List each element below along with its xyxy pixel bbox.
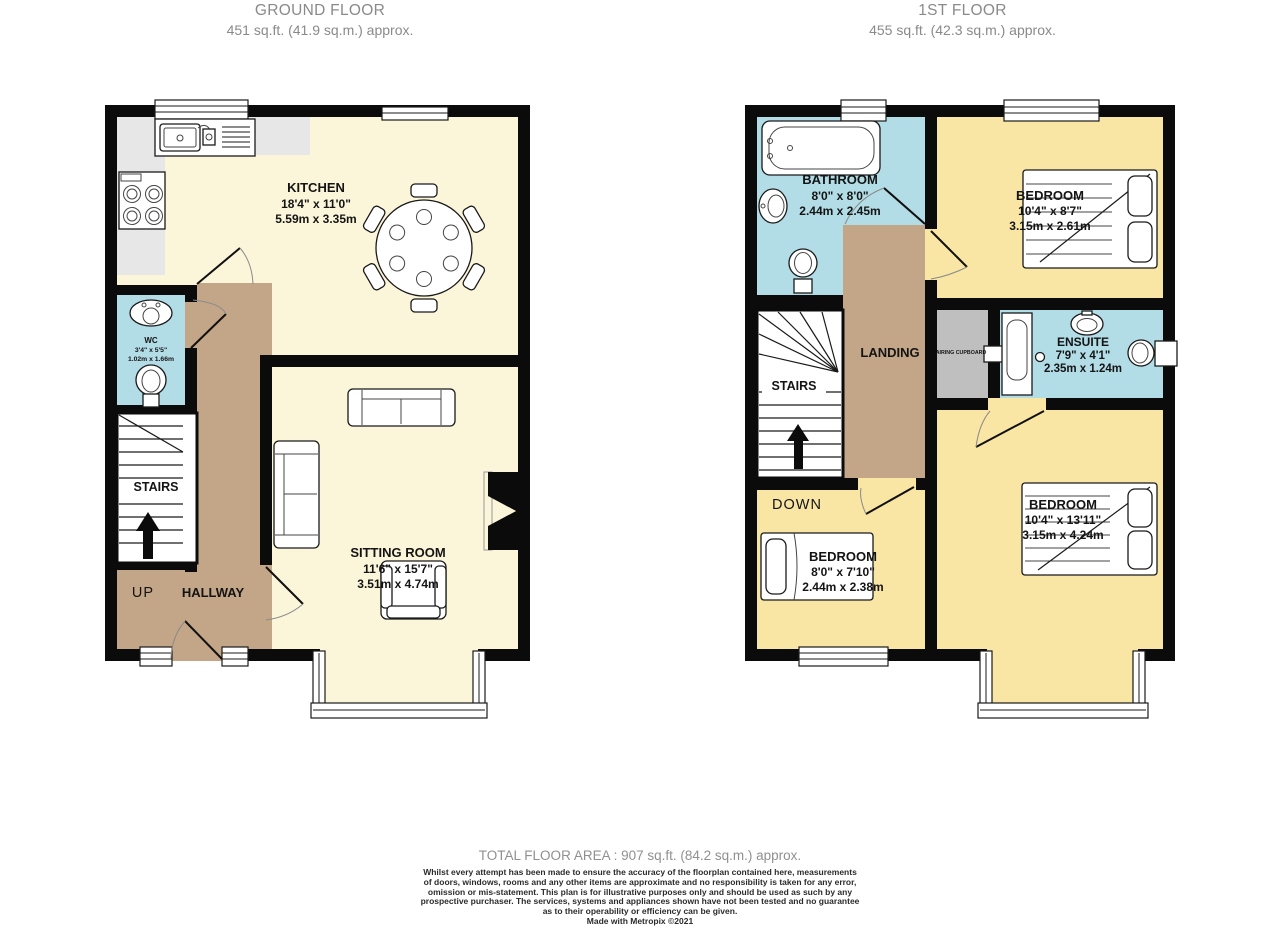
bedroom1-dims-metric: 3.15m x 2.61m [1009, 219, 1090, 233]
bathroom-label: BATHROOM [802, 172, 878, 187]
stove [119, 172, 165, 229]
bedroom3-bay-window [978, 649, 1148, 718]
sitting-room-dims-metric: 3.51m x 4.74m [357, 577, 438, 591]
ensuite-label: ENSUITE [1057, 335, 1109, 349]
kitchen-window-2 [382, 107, 448, 120]
ensuite-dims-metric: 2.35m x 1.24m [1044, 363, 1122, 375]
first-floor-area: 455 sq.ft. (42.3 sq.m.) approx. [740, 22, 1185, 38]
bedroom2-label: BEDROOM [809, 549, 877, 564]
total-floor-area: TOTAL FLOOR AREA : 907 sq.ft. (84.2 sq.m… [0, 848, 1280, 863]
bedroom1-door-gap [925, 229, 937, 280]
hallway-window [140, 647, 172, 666]
wc-dims-imperial: 3'4" x 5'5" [135, 347, 167, 354]
landing-label: LANDING [860, 345, 919, 360]
kitchen-window [155, 100, 248, 119]
kitchen-label: KITCHEN [287, 180, 345, 195]
disclaimer: Whilst every attempt has been made to en… [0, 868, 1280, 917]
hallway-window-2 [222, 647, 248, 666]
ground-stairs-label: STAIRS [134, 480, 179, 494]
sitting-room-bay-window [311, 649, 487, 718]
bathroom-dims-imperial: 8'0" x 8'0" [811, 189, 868, 203]
wc-label: WC [144, 336, 158, 345]
footer: TOTAL FLOOR AREA : 907 sq.ft. (84.2 sq.m… [0, 848, 1280, 927]
wc-sink [130, 300, 172, 326]
first-floor-title-block: 1ST FLOOR 455 sq.ft. (42.3 sq.m.) approx… [740, 2, 1185, 38]
bedroom3-dims-imperial: 10'4" x 13'11" [1025, 513, 1101, 527]
bedroom3-door-gap [988, 398, 1046, 410]
sitting-room-label: SITTING ROOM [350, 545, 445, 560]
ground-floor-area: 451 sq.ft. (41.9 sq.m.) approx. [100, 22, 540, 38]
bedroom1-dims-imperial: 10'4" x 8'7" [1018, 204, 1082, 218]
bedroom2-window [799, 647, 888, 666]
bedroom2-dims-metric: 2.44m x 2.38m [802, 580, 883, 594]
stairs-down-arrow-shaft [794, 441, 803, 469]
kitchen-sink [155, 119, 255, 156]
bedroom2-dims-imperial: 8'0" x 7'10" [811, 565, 875, 579]
hallway-floor-lower [117, 570, 197, 649]
ground-floor-plan: KITCHEN 18'4" x 11'0" 5.59m x 3.35m WC 3… [100, 95, 545, 728]
first-stairs-label: STAIRS [772, 379, 817, 393]
ensuite-dims-imperial: 7'9" x 4'1" [1056, 350, 1111, 362]
sitting-room-dims-imperial: 11'6" x 15'7" [363, 562, 433, 576]
bathroom-window [841, 100, 886, 121]
metropix-credit: Made with Metropix ©2021 [0, 917, 1280, 927]
stairs-up-arrow-shaft [143, 531, 153, 559]
ground-floor-title-block: GROUND FLOOR 451 sq.ft. (41.9 sq.m.) app… [100, 2, 540, 38]
hallway-label: HALLWAY [182, 585, 245, 600]
sofa-top [348, 389, 455, 426]
first-floor-title: 1ST FLOOR [740, 2, 1185, 20]
sofa-left [274, 441, 319, 548]
bathroom-dims-metric: 2.44m x 2.45m [799, 204, 880, 218]
first-stairs [757, 310, 843, 478]
kitchen-dims-metric: 5.59m x 3.35m [275, 212, 356, 226]
bedroom2-door-gap [858, 478, 916, 490]
down-label: DOWN [772, 497, 822, 513]
bedroom1-window [1004, 100, 1099, 121]
up-label: UP [132, 585, 154, 601]
bedroom1-label: BEDROOM [1016, 188, 1084, 203]
bedroom3-dims-metric: 3.15m x 4.24m [1022, 528, 1103, 542]
bedroom3-label: BEDROOM [1029, 497, 1097, 512]
airing-cupboard-label: AIRING CUPBOARD [936, 350, 987, 356]
wc-dims-metric: 1.02m x 1.66m [128, 356, 174, 363]
wc-door-gap [185, 302, 197, 348]
kitchen-dims-imperial: 18'4" x 11'0" [281, 197, 351, 211]
bathtub [762, 121, 880, 175]
first-floor-plan: BATHROOM 8'0" x 8'0" 2.44m x 2.45m BEDRO… [740, 95, 1185, 728]
bathroom-sink [759, 189, 787, 223]
ground-floor-title: GROUND FLOOR [100, 2, 540, 20]
